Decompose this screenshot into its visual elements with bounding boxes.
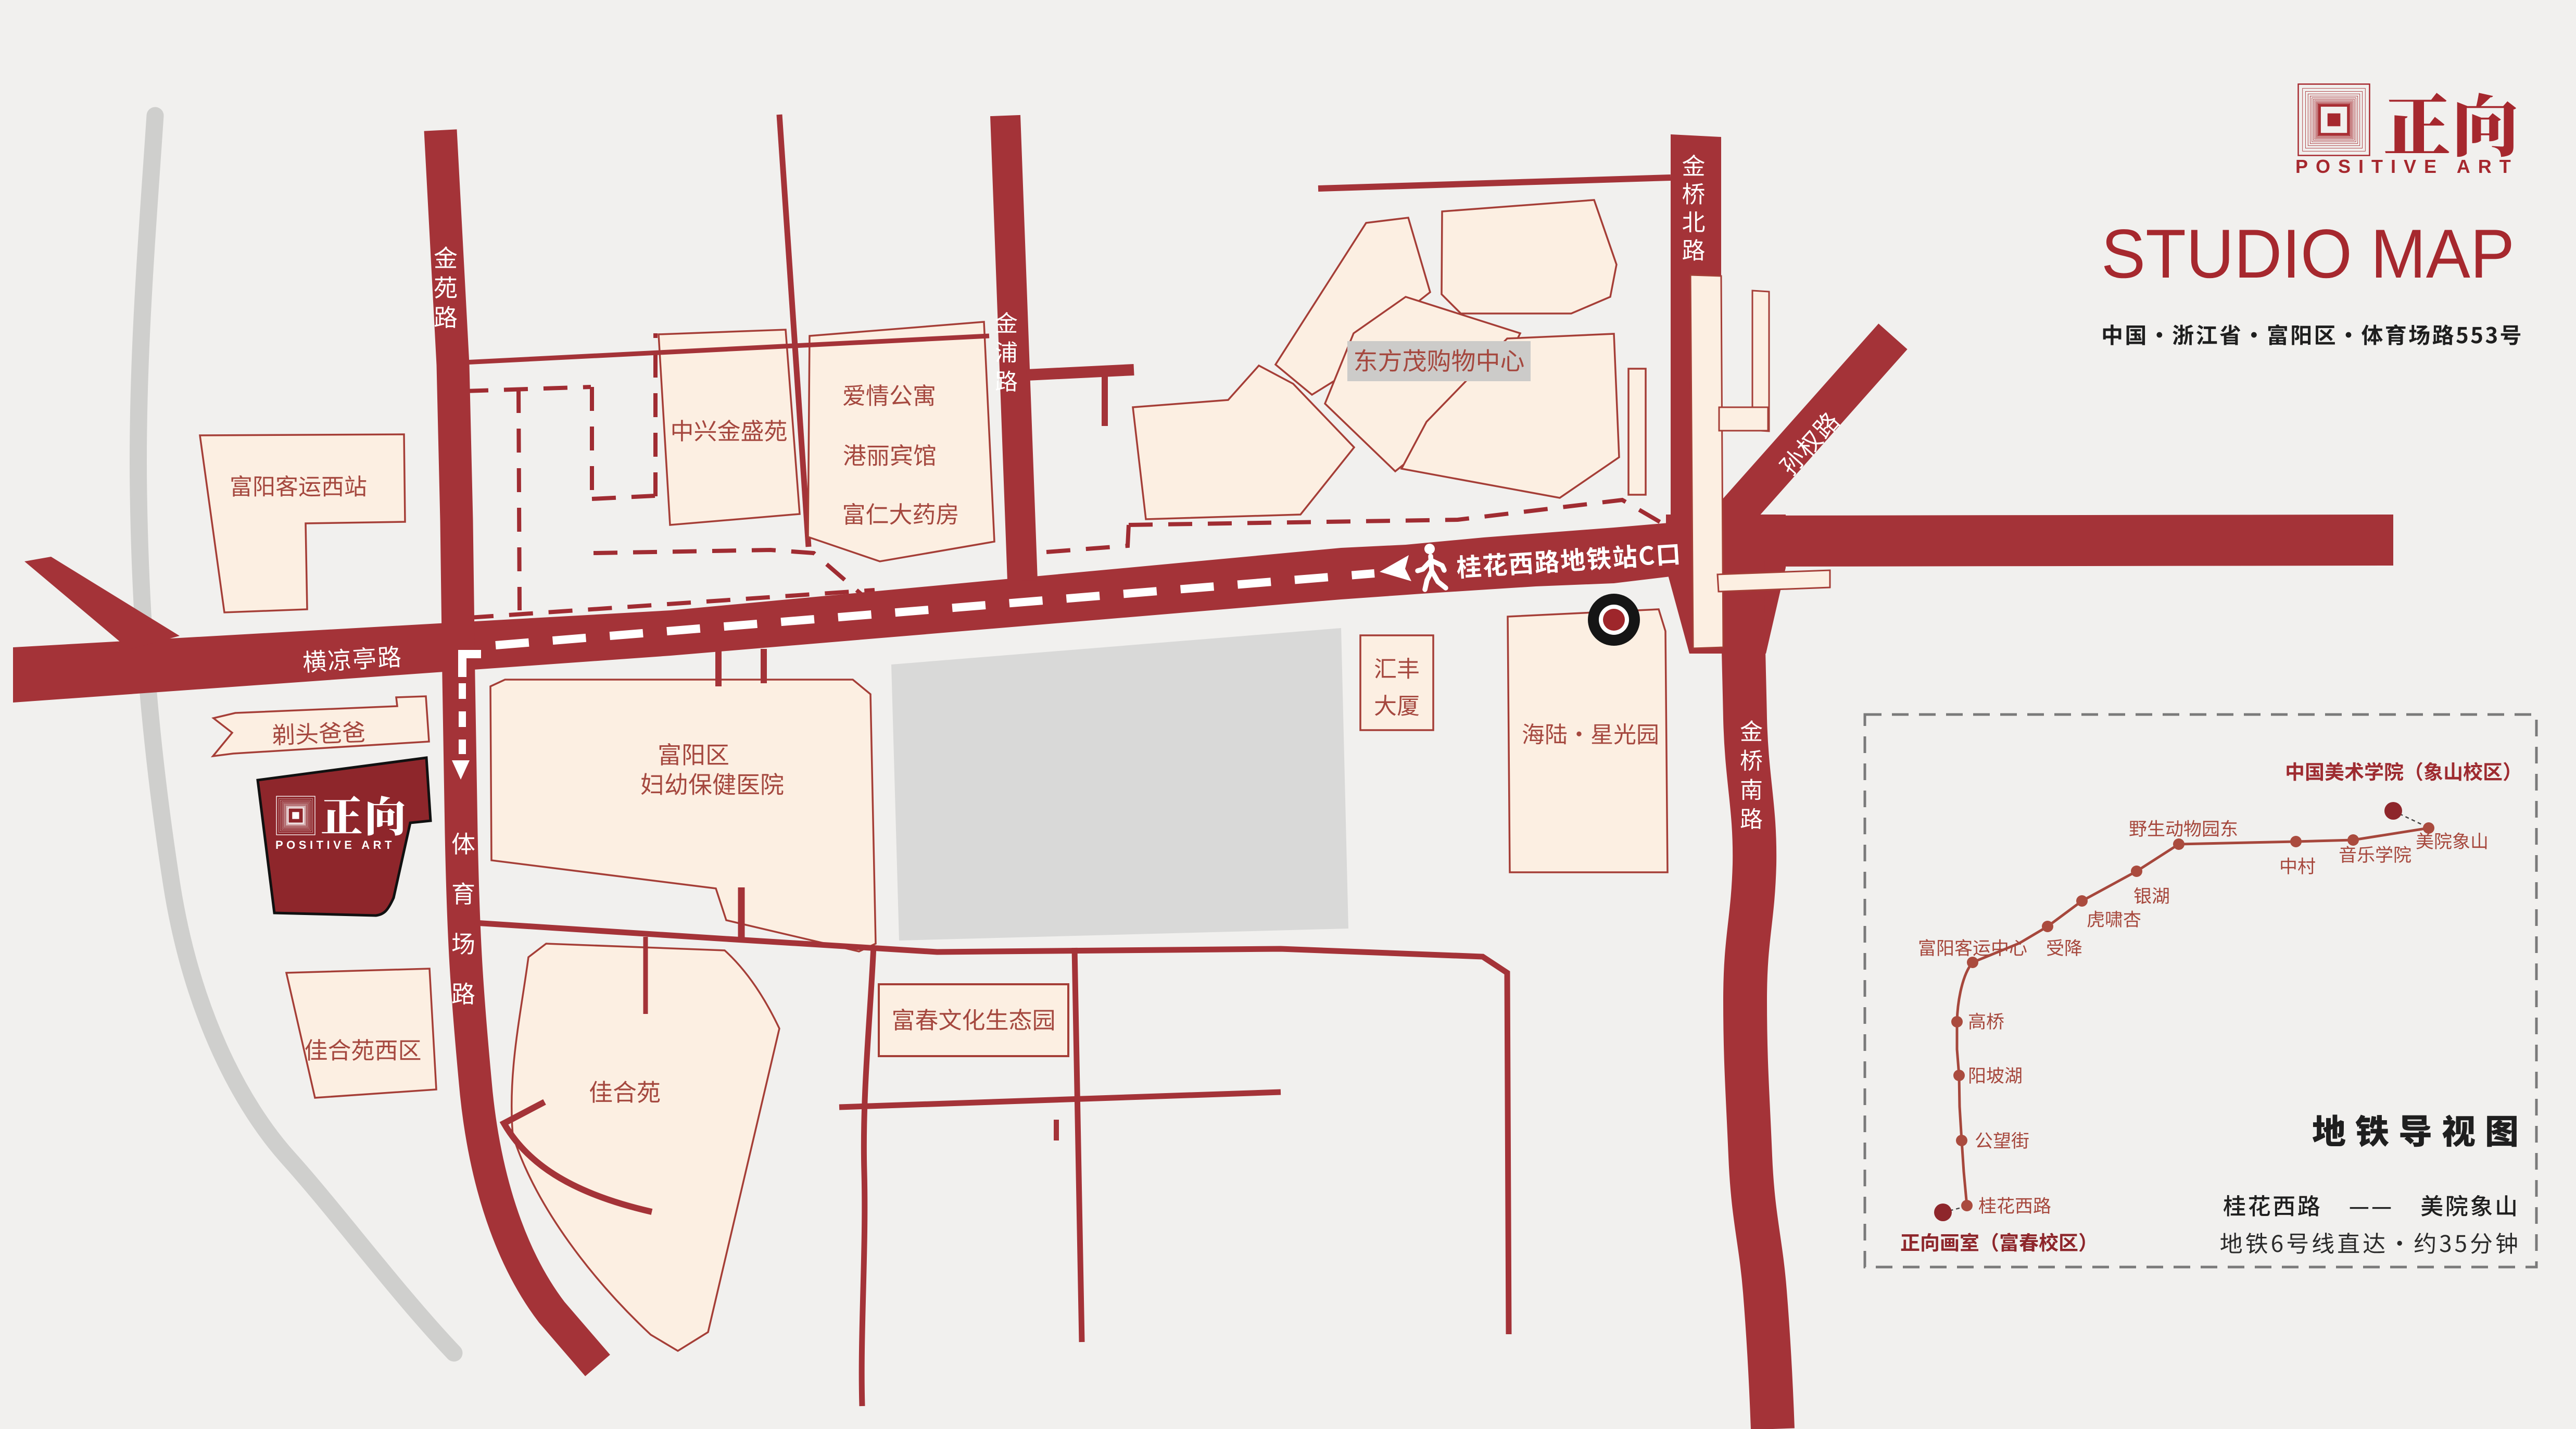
svg-text:POSITIVE ART: POSITIVE ART [275,838,395,851]
svg-text:STUDIO MAP: STUDIO MAP [2101,216,2515,293]
svg-text:POSITIVE ART: POSITIVE ART [2295,156,2519,177]
